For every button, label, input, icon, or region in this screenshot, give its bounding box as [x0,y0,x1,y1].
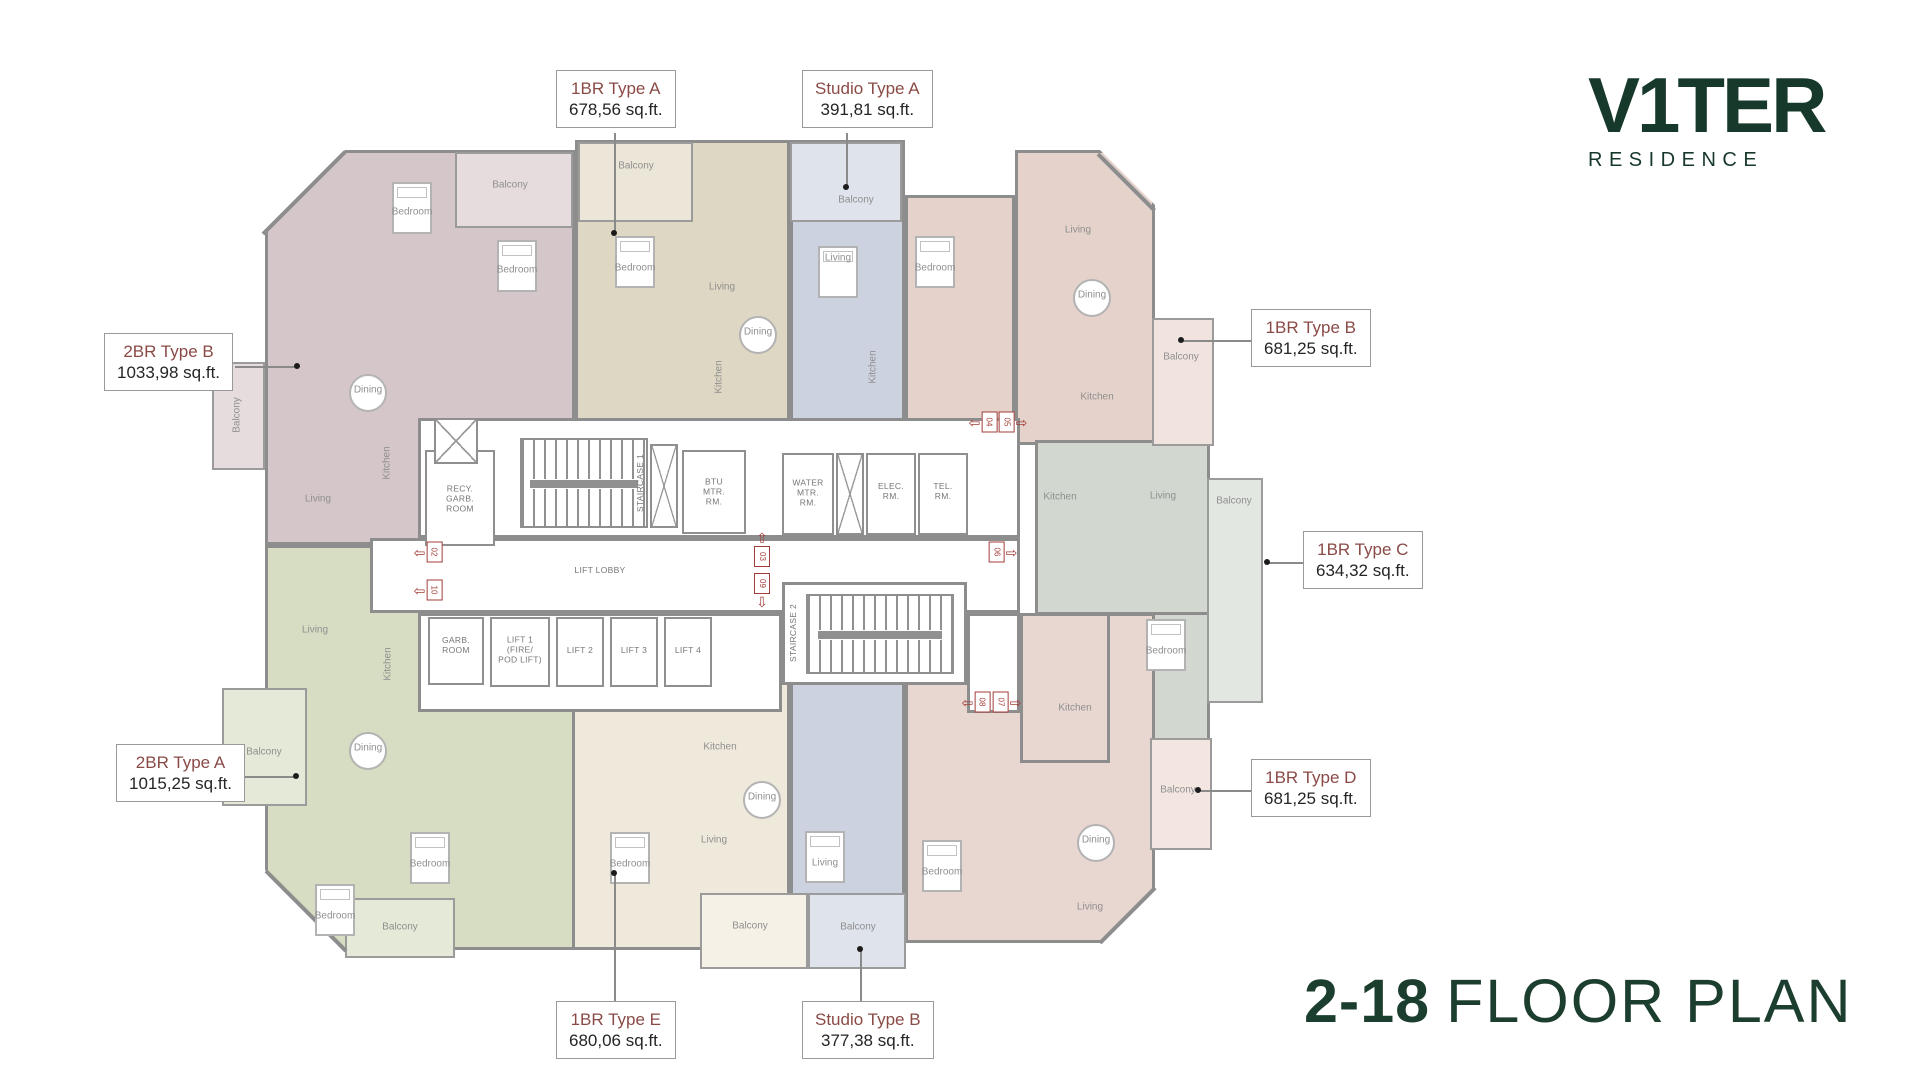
callout-line [614,873,616,1003]
bed-icon [410,832,450,884]
entry-arrow-icon: ⇦ [969,415,981,429]
unit-area-label: 634,32 sq.ft. [1316,560,1410,581]
unit-entry-marker: 05⇨ [999,412,1028,433]
dining-table-icon [739,316,777,354]
unit-entry-marker: 06⇨ [989,542,1018,563]
balcony [1207,478,1263,703]
unit-type-label: Studio Type B [815,1009,921,1030]
bed-icon [818,246,858,298]
unit-entry-marker: ⇦10 [414,580,443,601]
unit-type-label: Studio Type A [815,78,920,99]
callout-dot [857,946,863,952]
callout-1br-type-c: 1BR Type C 634,32 sq.ft. [1303,531,1423,589]
unit-1br-type-d-kitchen-wing [1020,613,1110,763]
unit-area-label: 681,25 sq.ft. [1264,788,1358,809]
unit-number: 02 [426,542,442,563]
callout-studio-type-b: Studio Type B 377,38 sq.ft. [802,1001,934,1059]
callout-dot [294,363,300,369]
lift-2 [556,617,604,687]
unit-type-label: 1BR Type B [1264,317,1358,338]
bed-icon [615,236,655,288]
callout-2br-type-a: 2BR Type A 1015,25 sq.ft. [116,744,245,802]
floor-plan-text: FLOOR PLAN [1446,967,1852,1035]
callout-1br-type-b: 1BR Type B 681,25 sq.ft. [1251,309,1371,367]
balcony [700,893,808,969]
unit-1br-type-b-bedroom-wing [905,195,1015,445]
bed-icon [915,236,955,288]
dining-table-icon [349,732,387,770]
entry-arrow-icon: ⇨ [1006,545,1018,559]
unit-number: 04 [981,412,997,433]
dining-table-icon [1077,824,1115,862]
bed-icon [315,884,355,936]
unit-type-label: 2BR Type A [129,752,232,773]
staircase-2 [806,594,954,674]
bed-icon [922,840,962,892]
unit-area-label: 1015,25 sq.ft. [129,773,232,794]
water-meter-room [782,453,834,535]
unit-area-label: 1033,98 sq.ft. [117,362,220,383]
btu-meter-room [682,450,746,534]
unit-number: 09 [754,573,770,594]
callout-dot [611,230,617,236]
brand-logo: V1TER RESIDENCE [1588,66,1888,172]
staircase-1 [520,438,648,528]
unit-number: 08 [974,692,990,713]
garbage-room [428,617,484,685]
unit-area-label: 681,25 sq.ft. [1264,338,1358,359]
entry-arrow-icon: ⇩ [756,595,768,609]
bed-icon [1146,619,1186,671]
callout-1br-type-d: 1BR Type D 681,25 sq.ft. [1251,759,1371,817]
callout-dot [611,870,617,876]
callout-dot [843,184,849,190]
callout-line [1198,790,1251,792]
callout-line [846,133,848,187]
bed-icon [805,831,845,883]
lift-shaft [836,453,864,535]
balcony [808,893,906,969]
callout-line [235,366,297,368]
callout-line [614,133,616,234]
unit-area-label: 377,38 sq.ft. [815,1030,921,1051]
callout-line [1267,562,1303,564]
callout-dot [1195,787,1201,793]
lift-1 [490,617,550,687]
brand-subtitle: RESIDENCE [1588,149,1888,172]
balcony [578,142,693,222]
callout-studio-type-a: Studio Type A 391,81 sq.ft. [802,70,933,128]
unit-number: 10 [426,580,442,601]
page-title: 2-18FLOOR PLAN [1304,966,1853,1036]
unit-number: 07 [993,692,1009,713]
unit-entry-marker: ⇦04 [969,412,998,433]
lift-3 [610,617,658,687]
entry-arrow-icon: ⇧ [756,531,768,545]
unit-entry-marker: 09⇩ [754,573,770,609]
callout-2br-type-b: 2BR Type B 1033,98 sq.ft. [104,333,233,391]
lift-shaft [434,418,478,464]
lift-shaft [650,444,678,528]
callout-1br-type-e: 1BR Type E 680,06 sq.ft. [556,1001,676,1059]
recycle-garbage-room [425,450,495,546]
unit-area-label: 680,06 sq.ft. [569,1030,663,1051]
unit-area-label: 391,81 sq.ft. [815,99,920,120]
unit-entry-marker: ⇦08 [962,692,991,713]
callout-dot [1178,337,1184,343]
entry-arrow-icon: ⇨ [1010,695,1022,709]
floor-range: 2-18 [1304,967,1430,1035]
dining-table-icon [743,781,781,819]
bed-icon [392,182,432,234]
unit-type-label: 1BR Type D [1264,767,1358,788]
unit-number: 03 [754,546,770,567]
bed-icon [610,832,650,884]
telecom-room [918,453,968,535]
unit-1br-type-c-area [1035,440,1210,615]
dining-table-icon [1073,279,1111,317]
unit-entry-marker: 07⇨ [993,692,1022,713]
balcony [345,898,455,958]
callout-line [1181,340,1251,342]
electrical-room [866,453,916,535]
callout-1br-type-a: 1BR Type A 678,56 sq.ft. [556,70,676,128]
lift-4 [664,617,712,687]
entry-arrow-icon: ⇦ [962,695,974,709]
unit-type-label: 1BR Type A [569,78,663,99]
balcony [1150,738,1212,850]
unit-area-label: 678,56 sq.ft. [569,99,663,120]
unit-entry-marker: ⇦02 [414,542,443,563]
unit-type-label: 2BR Type B [117,341,220,362]
callout-line [860,949,862,1003]
balcony [455,152,573,228]
entry-arrow-icon: ⇦ [414,583,426,597]
callout-dot [1264,559,1270,565]
unit-number: 06 [989,542,1005,563]
unit-type-label: 1BR Type C [1316,539,1410,560]
unit-entry-marker: ⇧03 [754,531,770,567]
brand-name: V1TER [1588,66,1888,144]
entry-arrow-icon: ⇦ [414,545,426,559]
callout-dot [293,773,299,779]
entry-arrow-icon: ⇨ [1016,415,1028,429]
dining-table-icon [349,374,387,412]
unit-type-label: 1BR Type E [569,1009,663,1030]
unit-number: 05 [999,412,1015,433]
bed-icon [497,240,537,292]
